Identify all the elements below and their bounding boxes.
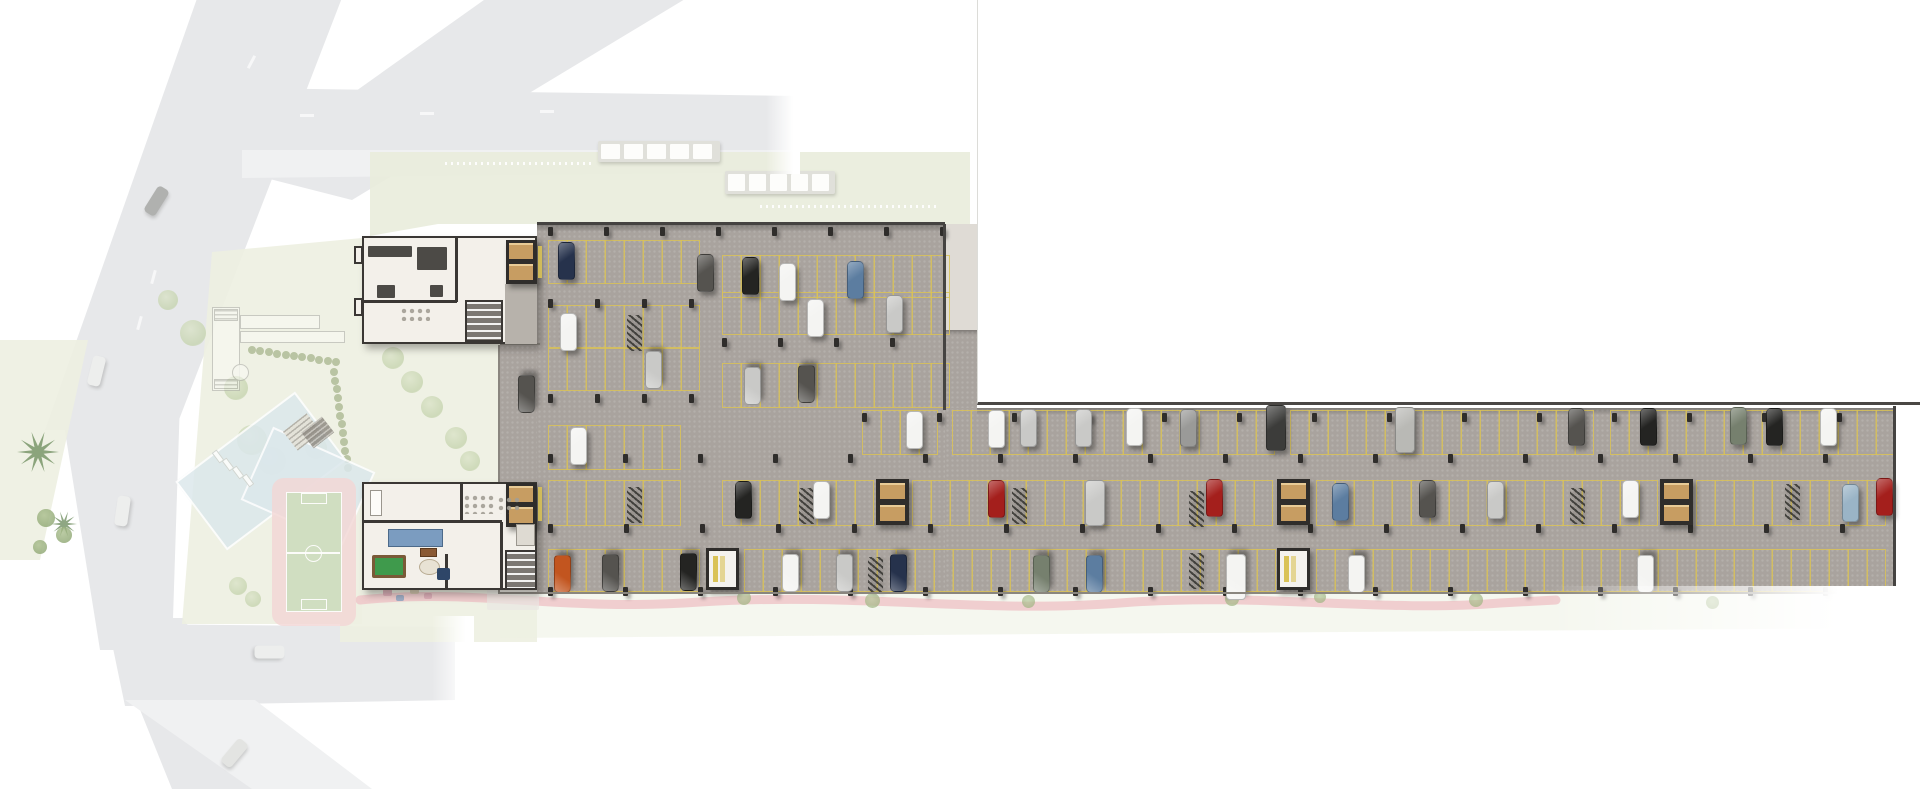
fade-overlays-layer (0, 0, 1920, 789)
fade-top-road-end (766, 82, 800, 174)
site-plan-canvas (0, 0, 1920, 789)
fade-southeast (1550, 586, 1910, 640)
fade-road-end (432, 616, 474, 712)
